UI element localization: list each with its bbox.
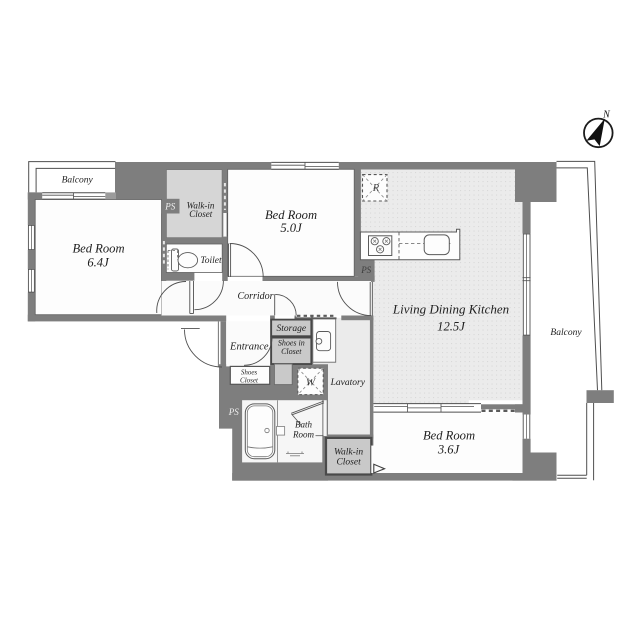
svg-text:Corridor: Corridor	[237, 291, 273, 302]
svg-text:Lavatory: Lavatory	[330, 378, 366, 388]
svg-text:12.5J: 12.5J	[437, 319, 466, 333]
svg-text:PS: PS	[360, 265, 371, 275]
svg-text:Shoes in: Shoes in	[278, 338, 305, 347]
svg-text:Closet: Closet	[189, 209, 213, 219]
svg-text:Bed Room: Bed Room	[265, 208, 317, 222]
svg-text:Closet: Closet	[336, 457, 361, 467]
svg-text:W: W	[306, 377, 316, 389]
svg-text:Storage: Storage	[277, 324, 307, 334]
svg-text:Balcony: Balcony	[550, 328, 582, 338]
svg-text:Room: Room	[292, 430, 314, 440]
svg-text:Balcony: Balcony	[62, 176, 94, 186]
svg-text:PS: PS	[228, 407, 239, 417]
svg-text:Toilet: Toilet	[200, 256, 222, 266]
svg-text:5.0J: 5.0J	[280, 221, 303, 235]
svg-text:Entrance: Entrance	[229, 342, 269, 353]
svg-text:Living Dining Kitchen: Living Dining Kitchen	[392, 301, 509, 316]
svg-text:Bed Room: Bed Room	[72, 241, 124, 255]
svg-text:N: N	[602, 110, 611, 121]
svg-text:PS: PS	[164, 202, 175, 212]
svg-text:6.4J: 6.4J	[87, 255, 110, 269]
svg-text:Bath: Bath	[295, 420, 312, 430]
svg-text:Bed Room: Bed Room	[423, 428, 475, 442]
svg-text:R: R	[372, 183, 380, 194]
svg-text:3.6J: 3.6J	[437, 442, 461, 456]
svg-text:Closet: Closet	[240, 376, 259, 384]
svg-text:Closet: Closet	[281, 347, 302, 356]
svg-text:Walk-in: Walk-in	[334, 447, 363, 457]
